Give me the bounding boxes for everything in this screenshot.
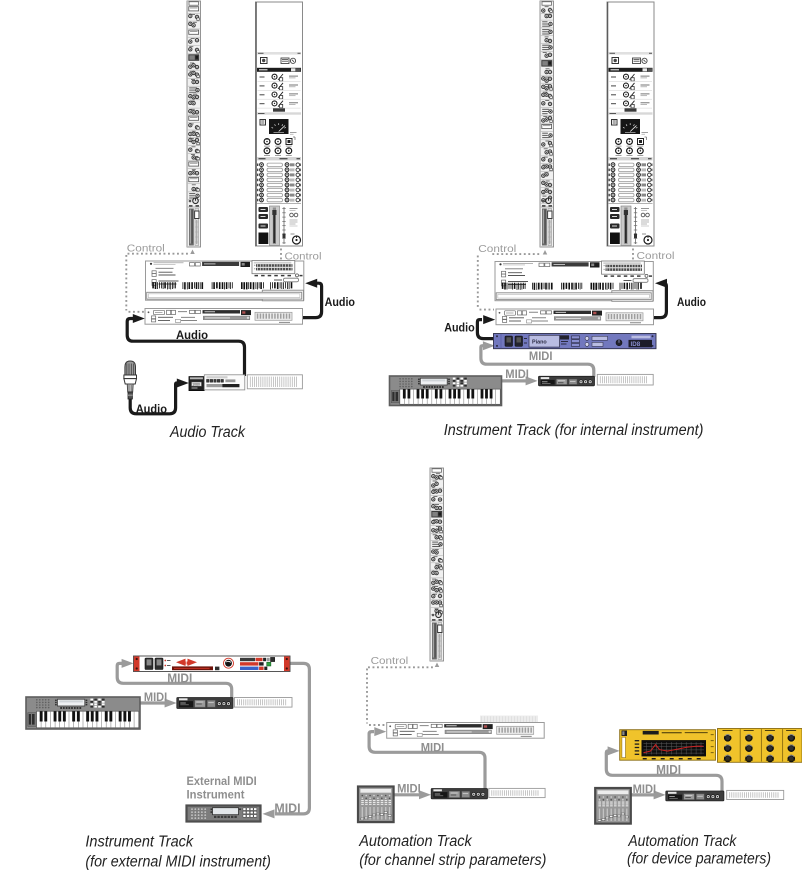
- svg-text:Control: Control: [637, 250, 675, 262]
- svg-text:MIDI: MIDI: [274, 801, 300, 815]
- svg-text:Automation Track: Automation Track: [358, 833, 473, 850]
- svg-text:MIDI: MIDI: [421, 741, 445, 755]
- svg-text:Control: Control: [285, 250, 322, 262]
- svg-text:(for external MIDI instrument): (for external MIDI instrument): [85, 853, 271, 870]
- svg-text:Audio: Audio: [176, 330, 208, 342]
- svg-text:(for channel strip parameters): (for channel strip parameters): [359, 852, 546, 869]
- svg-text:Control: Control: [371, 655, 409, 667]
- svg-text:(for device parameters): (for device parameters): [627, 851, 771, 868]
- svg-text:Audio: Audio: [136, 404, 167, 416]
- svg-text:Audio: Audio: [677, 297, 706, 309]
- svg-text:Audio: Audio: [325, 297, 355, 309]
- svg-text:Instrument: Instrument: [187, 788, 245, 802]
- svg-text:MIDI: MIDI: [182, 660, 192, 665]
- svg-text:MIDI: MIDI: [144, 690, 167, 704]
- svg-text:Control: Control: [127, 243, 165, 255]
- svg-text:Instrument Track (for internal: Instrument Track (for internal instrumen…: [444, 422, 704, 439]
- svg-text:Automation Track: Automation Track: [628, 833, 738, 850]
- svg-text:1060: 1060: [192, 382, 200, 386]
- svg-text:MIDI: MIDI: [167, 671, 192, 685]
- svg-text:External MIDI: External MIDI: [187, 774, 257, 788]
- svg-text:MIDI: MIDI: [505, 367, 529, 381]
- svg-text:MIDI: MIDI: [529, 349, 553, 363]
- svg-text:Audio: Audio: [444, 323, 475, 335]
- svg-text:MIDI: MIDI: [656, 763, 681, 777]
- svg-text:Audio Track: Audio Track: [169, 424, 246, 441]
- svg-text:ID8: ID8: [631, 341, 641, 348]
- svg-text:Control: Control: [478, 243, 516, 255]
- svg-text:Instrument Track: Instrument Track: [85, 833, 194, 850]
- svg-text:MIDI: MIDI: [397, 782, 421, 796]
- svg-text:Piano: Piano: [532, 339, 547, 345]
- svg-text:MIDI: MIDI: [633, 782, 657, 796]
